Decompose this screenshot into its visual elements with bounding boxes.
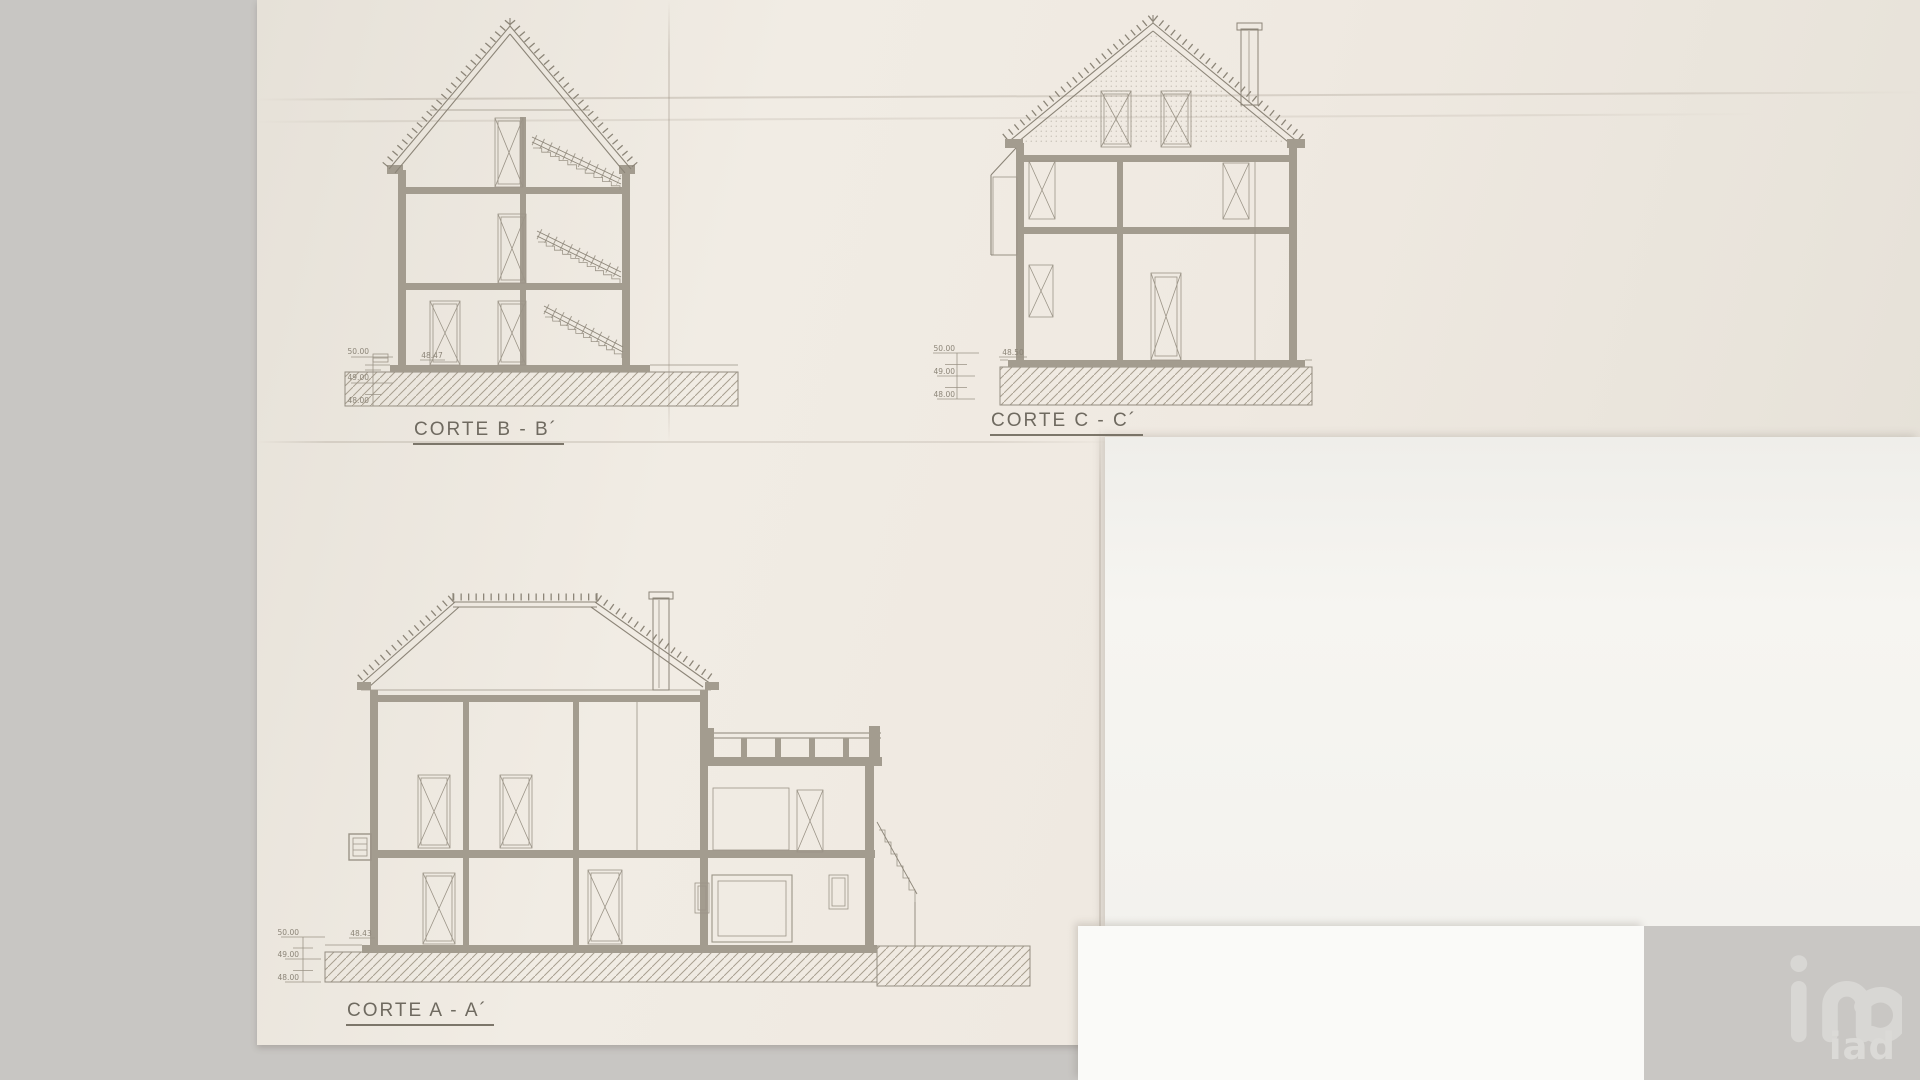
doors bbox=[418, 775, 622, 944]
svg-text:48.50: 48.50 bbox=[1002, 348, 1024, 357]
elevation-ruler: 50.00 49.00 48.00 bbox=[278, 928, 325, 982]
roof-stipple bbox=[1017, 33, 1289, 145]
iad-logo-text: iad bbox=[1829, 1025, 1896, 1068]
annex bbox=[695, 726, 1030, 946]
blank-sheet-bottom bbox=[1078, 926, 1644, 1080]
elevation-label: 50.00 bbox=[278, 928, 300, 937]
foundation-hatch bbox=[345, 372, 738, 406]
foundation-hatch bbox=[1000, 367, 1312, 405]
fold-crease bbox=[257, 441, 1117, 443]
svg-text:48.47: 48.47 bbox=[421, 351, 443, 360]
elevation-label: 49.00 bbox=[278, 950, 300, 959]
section-a-drawing: 50.00 49.00 48.00 48.43 bbox=[265, 580, 1035, 1020]
elevation-label: 48.00 bbox=[278, 973, 300, 982]
roof bbox=[357, 593, 719, 690]
meter-box bbox=[349, 834, 371, 860]
elevation-label: 50.00 bbox=[934, 344, 956, 353]
blank-sheet-right bbox=[1105, 437, 1920, 926]
walls-and-slabs bbox=[1000, 139, 1312, 367]
section-b-drawing: 50.00 49.00 48.00 48.47 bbox=[335, 18, 745, 418]
photographed-plan: 50.00 49.00 48.00 48.47 CORTE B - B´ bbox=[0, 0, 1920, 1080]
elevation-label: 50.00 bbox=[348, 347, 370, 356]
base-elevation-label: 48.47 bbox=[420, 351, 445, 360]
trellis-panel bbox=[713, 788, 789, 850]
left-annex bbox=[991, 148, 1017, 255]
central-door bbox=[1151, 273, 1181, 360]
title-corte-c: CORTE C - C´ bbox=[990, 410, 1143, 436]
elevation-ruler: 50.00 49.00 48.00 bbox=[933, 344, 979, 399]
title-corte-a: CORTE A - A´ bbox=[346, 1000, 494, 1026]
elevation-label: 49.00 bbox=[934, 367, 956, 376]
title-corte-b: CORTE B - B´ bbox=[413, 419, 564, 445]
walls-and-slabs bbox=[365, 110, 738, 372]
staircase bbox=[532, 137, 623, 358]
svg-text:48.43: 48.43 bbox=[350, 929, 372, 938]
annex-door bbox=[797, 790, 823, 852]
walls-and-slabs bbox=[325, 690, 877, 953]
entrance-step bbox=[373, 354, 388, 362]
iad-logo: iad bbox=[1782, 948, 1902, 1068]
background-corner: iad bbox=[1644, 926, 1920, 1080]
base-elevation-label: 48.43 bbox=[349, 929, 375, 938]
garage-door bbox=[712, 875, 792, 942]
section-c-drawing: 50.00 49.00 48.00 48.50 bbox=[905, 15, 1317, 435]
doors bbox=[430, 118, 526, 365]
elevation-label: 49.00 bbox=[348, 373, 370, 382]
elevation-label: 48.00 bbox=[934, 390, 956, 399]
balustrade bbox=[705, 726, 881, 758]
roof bbox=[1002, 15, 1304, 146]
ridge-finials bbox=[453, 593, 597, 602]
external-stair bbox=[873, 822, 1030, 946]
elevation-label: 48.00 bbox=[348, 396, 370, 405]
base-elevation-label: 48.50 bbox=[999, 348, 1027, 357]
lattice-panel bbox=[993, 177, 1017, 255]
